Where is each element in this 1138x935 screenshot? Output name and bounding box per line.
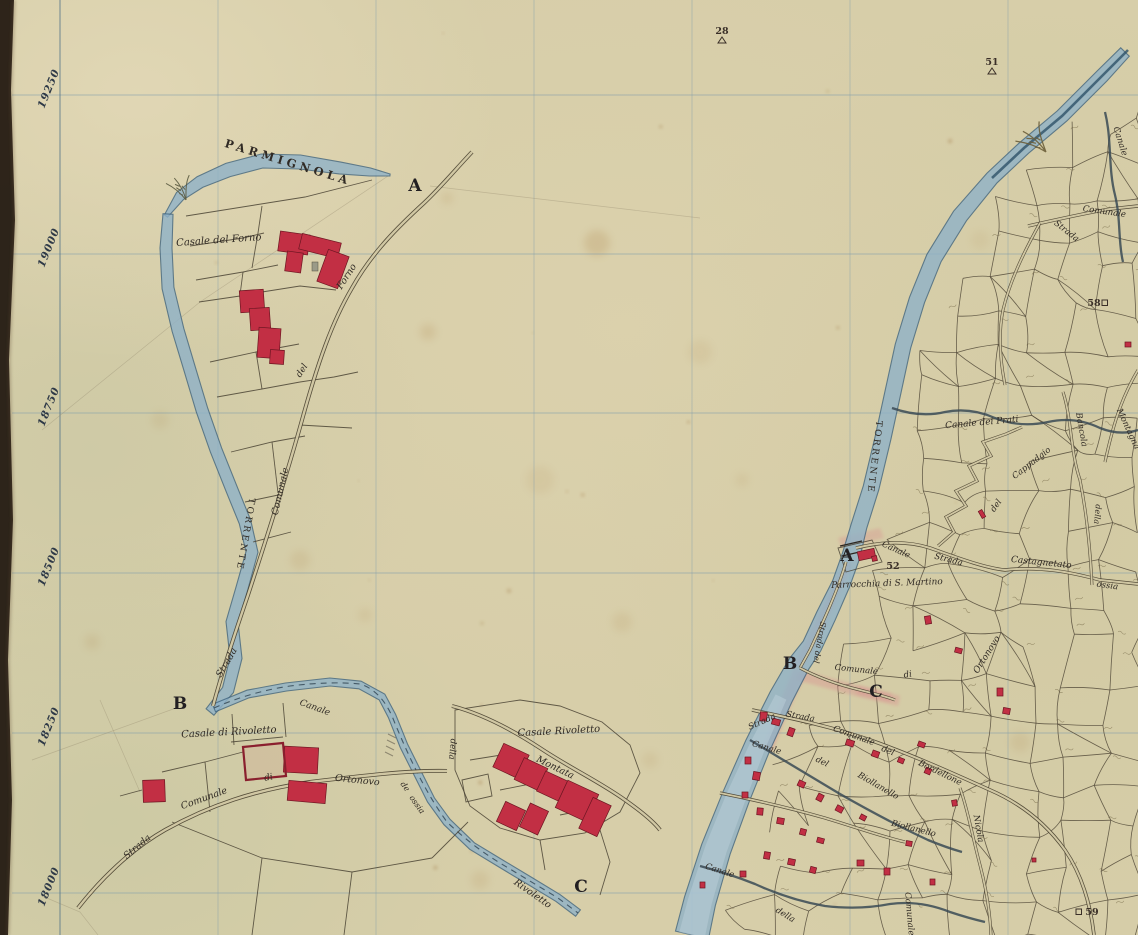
map-label: del xyxy=(294,362,310,379)
reference-letter: C xyxy=(869,682,883,702)
map-canvas[interactable]: 192501900018750185001825018000 PARMIGNOL… xyxy=(0,0,1138,935)
map-label: Biollanello xyxy=(889,818,937,839)
cadastral-map: 192501900018750185001825018000 PARMIGNOL… xyxy=(0,0,1138,935)
survey-square-icon xyxy=(1076,909,1082,915)
map-label: Casale del Forno xyxy=(176,232,262,249)
survey-point-number: 28 xyxy=(715,26,729,37)
map-label: di xyxy=(903,669,913,680)
margin-coordinate: 18750 xyxy=(36,385,63,428)
map-label: Comunale xyxy=(179,785,229,812)
margin-coordinate: 18000 xyxy=(36,865,63,908)
map-label: Comunale xyxy=(834,663,878,677)
map-label: della xyxy=(774,906,797,926)
map-label: ossia xyxy=(1096,580,1119,593)
map-label: della xyxy=(1092,504,1103,525)
map-label: ossia xyxy=(408,794,427,816)
survey-point-number: 51 xyxy=(985,57,998,68)
reference-letter: B xyxy=(173,694,187,714)
map-label: Bancola xyxy=(1073,411,1089,448)
map-label: del xyxy=(988,497,1004,514)
map-label: Cappadgio xyxy=(1010,445,1053,481)
margin-coordinate: 19250 xyxy=(36,67,63,110)
triangulation-triangle-icon xyxy=(988,68,996,74)
reference-letter: B xyxy=(783,654,797,674)
map-label: Strada xyxy=(1052,219,1081,245)
survey-square-icon xyxy=(1102,300,1108,306)
margin-coordinate: 18250 xyxy=(36,705,63,748)
map-label: della xyxy=(446,738,458,760)
scan-edge xyxy=(0,0,15,935)
map-label: del xyxy=(814,755,830,770)
map-label: Strada xyxy=(933,552,963,569)
margin-coordinate: 19000 xyxy=(36,226,63,269)
map-label: del xyxy=(880,744,896,758)
reference-letter: A xyxy=(407,176,422,196)
triangulation-triangle-icon xyxy=(718,37,726,43)
survey-point-number: 58 xyxy=(1087,298,1101,309)
map-label: Comunale xyxy=(270,466,292,516)
map-label: Canale xyxy=(1111,126,1130,158)
margin-coordinate: 18500 xyxy=(36,545,63,588)
survey-point-number: 52 xyxy=(886,561,899,572)
map-label: Casale Rivoletto xyxy=(517,724,600,739)
map-label: Casale di Rivoletto xyxy=(181,725,277,741)
reference-letter: C xyxy=(574,877,588,897)
map-label: Strada xyxy=(121,832,153,861)
reference-letter: A xyxy=(839,546,854,566)
map-labels: PARMIGNOLACasale del FornoFornodelComuna… xyxy=(121,26,1138,935)
map-label: Canale xyxy=(298,698,331,718)
survey-point-number: 59 xyxy=(1085,907,1099,918)
map-label: de xyxy=(399,780,412,793)
